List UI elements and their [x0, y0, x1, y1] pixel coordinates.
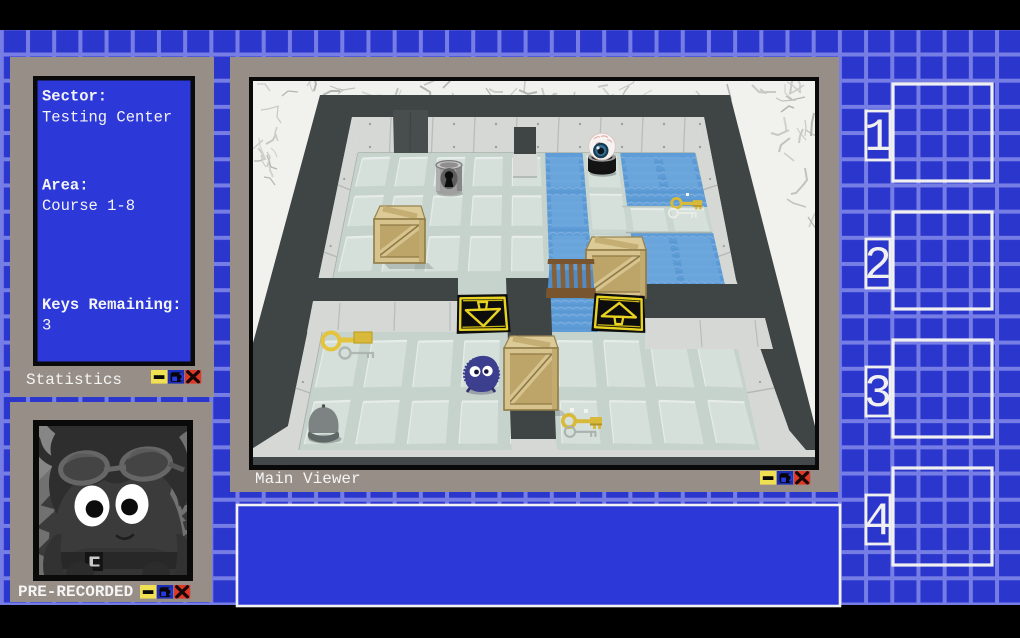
svg-text:PRE-RECORDED: PRE-RECORDED: [18, 583, 133, 601]
svg-text:Main Viewer: Main Viewer: [255, 470, 361, 488]
svg-text:1: 1: [864, 112, 892, 164]
svg-text:Keys Remaining:: Keys Remaining:: [42, 296, 182, 314]
svg-text:3: 3: [42, 317, 51, 335]
svg-text:3: 3: [864, 368, 892, 420]
svg-text:Course 1-8: Course 1-8: [42, 197, 135, 215]
svg-text:Area:: Area:: [42, 177, 89, 195]
svg-text:4: 4: [864, 496, 892, 548]
svg-text:Sector:: Sector:: [42, 88, 107, 106]
svg-text:Testing Center: Testing Center: [42, 109, 172, 127]
svg-text:2: 2: [864, 240, 892, 292]
svg-text:Statistics: Statistics: [26, 371, 122, 389]
